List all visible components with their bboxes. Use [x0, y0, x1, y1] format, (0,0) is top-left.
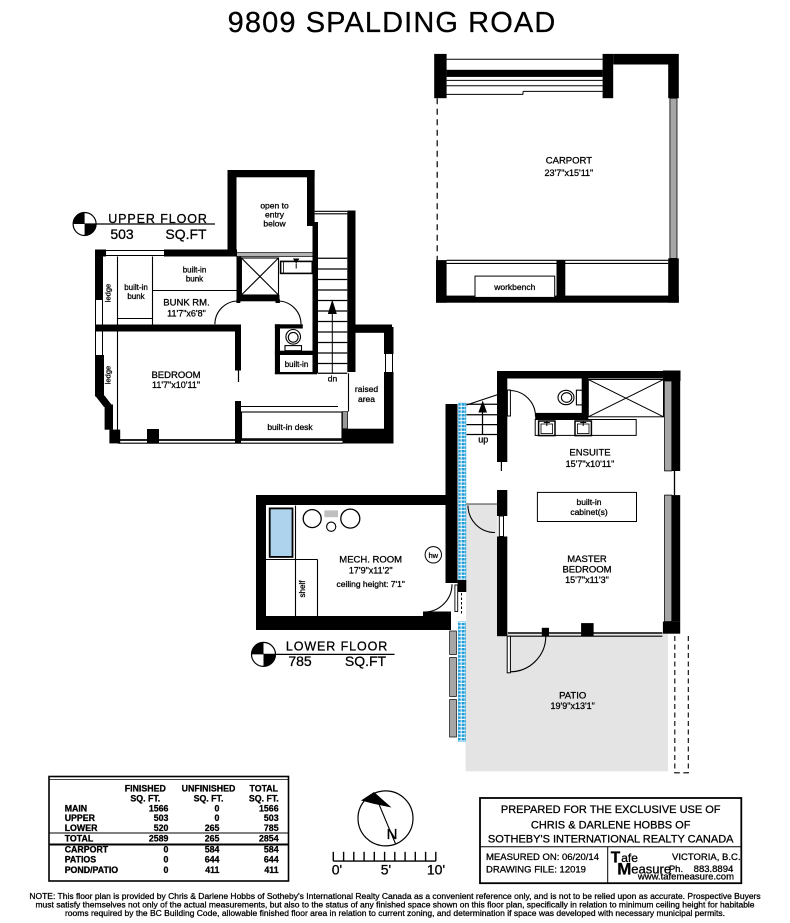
svg-text:CHRIS & DARLENE HOBBS OF: CHRIS & DARLENE HOBBS OF — [531, 819, 691, 831]
svg-text:up: up — [478, 435, 488, 445]
svg-text:LOWER: LOWER — [65, 823, 98, 833]
svg-text:785: 785 — [264, 823, 279, 833]
svg-text:ENSUITE: ENSUITE — [569, 448, 610, 459]
svg-text:MAIN: MAIN — [65, 803, 87, 813]
svg-text:bunk: bunk — [127, 292, 145, 301]
svg-text:1566: 1566 — [259, 803, 279, 813]
svg-text:520: 520 — [154, 823, 169, 833]
svg-text:2589: 2589 — [149, 834, 169, 844]
svg-text:265: 265 — [205, 834, 220, 844]
svg-text:built-in: built-in — [124, 283, 148, 292]
svg-text:11'7"x6'8": 11'7"x6'8" — [167, 309, 206, 319]
svg-text:BEDROOM: BEDROOM — [562, 565, 611, 576]
svg-text:0: 0 — [214, 813, 219, 823]
svg-text:rooms required by the BC Build: rooms required by the BC Building Code, … — [65, 908, 725, 918]
svg-text:SOTHEBY'S INTERNATIONAL REALTY: SOTHEBY'S INTERNATIONAL REALTY CANADA — [488, 834, 734, 846]
svg-text:M: M — [617, 859, 631, 878]
svg-text:area: area — [358, 394, 375, 404]
svg-text:0: 0 — [214, 803, 219, 813]
svg-text:PATIOS: PATIOS — [65, 855, 97, 865]
svg-text:built-in: built-in — [576, 497, 601, 507]
svg-text:503: 503 — [154, 813, 169, 823]
svg-text:10': 10' — [427, 862, 445, 878]
svg-text:503: 503 — [264, 813, 279, 823]
svg-text:shelf: shelf — [298, 580, 307, 598]
svg-text:MEASURED ON: 06/20/14: MEASURED ON: 06/20/14 — [486, 852, 599, 863]
svg-text:CARPORT: CARPORT — [65, 844, 109, 854]
svg-text:below: below — [263, 219, 286, 229]
svg-text:644: 644 — [264, 855, 279, 865]
svg-text:23'7"x15'11": 23'7"x15'11" — [545, 168, 594, 178]
svg-text:503: 503 — [110, 226, 134, 242]
svg-text:SQ. FT.: SQ. FT. — [130, 794, 160, 804]
svg-text:785: 785 — [288, 653, 312, 669]
svg-text:dn: dn — [328, 374, 338, 384]
svg-text:POND/PATIO: POND/PATIO — [65, 865, 119, 875]
svg-text:644: 644 — [205, 855, 220, 865]
svg-text:N: N — [387, 826, 398, 843]
svg-text:411: 411 — [264, 865, 278, 875]
svg-text:17'9"x11'2": 17'9"x11'2" — [349, 566, 393, 576]
svg-text:BUNK RM.: BUNK RM. — [163, 298, 209, 309]
svg-text:SQ.FT: SQ.FT — [165, 226, 207, 242]
svg-text:0: 0 — [163, 844, 168, 854]
svg-text:hw: hw — [429, 551, 439, 560]
svg-text:584: 584 — [264, 844, 279, 854]
svg-text:2854: 2854 — [259, 834, 279, 844]
svg-text:www.tafemeasure.com: www.tafemeasure.com — [637, 871, 734, 882]
svg-text:cabinet(s): cabinet(s) — [570, 507, 607, 517]
svg-text:ceiling height: 7'1": ceiling height: 7'1" — [336, 579, 404, 589]
svg-text:411: 411 — [205, 865, 219, 875]
svg-text:raised: raised — [355, 384, 378, 394]
svg-text:built-in: built-in — [285, 360, 309, 369]
svg-text:CARPORT: CARPORT — [546, 156, 592, 167]
svg-text:UNFINISHED: UNFINISHED — [182, 784, 236, 794]
svg-text:0': 0' — [332, 862, 342, 878]
svg-text:bunk: bunk — [186, 275, 204, 284]
svg-text:UPPER FLOOR: UPPER FLOOR — [108, 212, 208, 226]
svg-text:SQ.FT: SQ.FT — [345, 653, 387, 669]
svg-text:0: 0 — [163, 865, 168, 875]
svg-text:ledge: ledge — [104, 366, 113, 384]
svg-text:MASTER: MASTER — [567, 554, 607, 565]
svg-text:1566: 1566 — [149, 803, 169, 813]
svg-text:ledge: ledge — [104, 284, 113, 302]
svg-text:11'7"x10'11": 11'7"x10'11" — [152, 380, 200, 390]
svg-text:15'7"x10'11": 15'7"x10'11" — [566, 459, 615, 469]
svg-text:584: 584 — [205, 844, 220, 854]
svg-text:9809 SPALDING ROAD: 9809 SPALDING ROAD — [228, 7, 557, 39]
svg-text:SQ. FT.: SQ. FT. — [194, 794, 224, 804]
svg-text:PREPARED FOR THE EXCLUSIVE USE: PREPARED FOR THE EXCLUSIVE USE OF — [501, 804, 721, 816]
svg-text:built-in: built-in — [183, 266, 207, 275]
svg-text:FINISHED: FINISHED — [125, 784, 166, 794]
svg-text:19'9"x13'1": 19'9"x13'1" — [551, 701, 595, 711]
svg-text:workbench: workbench — [493, 282, 535, 292]
svg-text:TOTAL: TOTAL — [250, 784, 279, 794]
svg-text:VICTORIA, B.C.: VICTORIA, B.C. — [672, 852, 740, 863]
svg-text:TOTAL: TOTAL — [65, 834, 94, 844]
svg-text:built-in desk: built-in desk — [267, 422, 313, 432]
svg-text:0: 0 — [163, 855, 168, 865]
svg-text:DRAWING FILE: 12019: DRAWING FILE: 12019 — [486, 864, 586, 875]
svg-text:15'7"x11'3": 15'7"x11'3" — [565, 575, 609, 585]
svg-text:MECH. ROOM: MECH. ROOM — [339, 555, 402, 566]
svg-text:265: 265 — [205, 823, 220, 833]
svg-text:UPPER: UPPER — [65, 813, 96, 823]
svg-text:LOWER FLOOR: LOWER FLOOR — [286, 640, 388, 654]
svg-text:PATIO: PATIO — [559, 691, 586, 702]
svg-text:5': 5' — [381, 862, 391, 878]
svg-text:SQ. FT.: SQ. FT. — [249, 794, 279, 804]
